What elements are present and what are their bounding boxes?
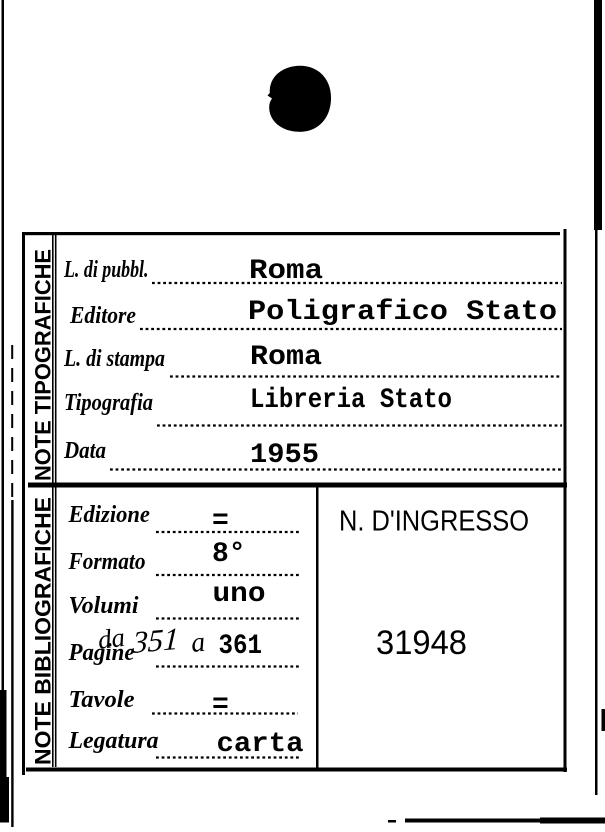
svg-text:N. D'INGRESSO: N. D'INGRESSO (339, 506, 529, 538)
svg-text:L. di stampa: L. di stampa (63, 346, 165, 372)
svg-text:Tavole: Tavole (69, 687, 135, 713)
svg-text:Libreria Stato: Libreria Stato (250, 385, 452, 416)
svg-text:carta: carta (217, 729, 304, 760)
svg-text:NOTE TIPOGRAFICHE: NOTE TIPOGRAFICHE (31, 249, 56, 481)
svg-text:1955: 1955 (250, 440, 319, 471)
svg-text:Tipografia: Tipografia (64, 390, 153, 416)
svg-text:Roma: Roma (249, 256, 323, 287)
svg-text:Editore: Editore (69, 303, 136, 329)
svg-text:8°: 8° (212, 539, 246, 570)
svg-text:Roma: Roma (250, 342, 322, 373)
svg-text:Poligrafico Stato: Poligrafico Stato (248, 297, 557, 328)
svg-text:=: = (212, 690, 229, 721)
svg-text:=: = (212, 506, 229, 537)
svg-text:Legatura: Legatura (68, 728, 159, 754)
svg-text:Formato: Formato (68, 549, 146, 575)
svg-text:L. di pubbl.: L. di pubbl. (63, 257, 148, 283)
svg-text:Volumi: Volumi (69, 593, 139, 619)
svg-text:Data: Data (63, 438, 106, 464)
svg-text:uno: uno (213, 579, 266, 610)
svg-text:351: 351 (131, 621, 180, 660)
svg-text:Edizione: Edizione (68, 502, 151, 528)
svg-text:31948: 31948 (376, 624, 467, 662)
svg-text:361: 361 (219, 631, 263, 662)
svg-text:NOTE BIBLIOGRAFICHE: NOTE BIBLIOGRAFICHE (31, 497, 56, 765)
svg-text:da: da (96, 622, 126, 655)
